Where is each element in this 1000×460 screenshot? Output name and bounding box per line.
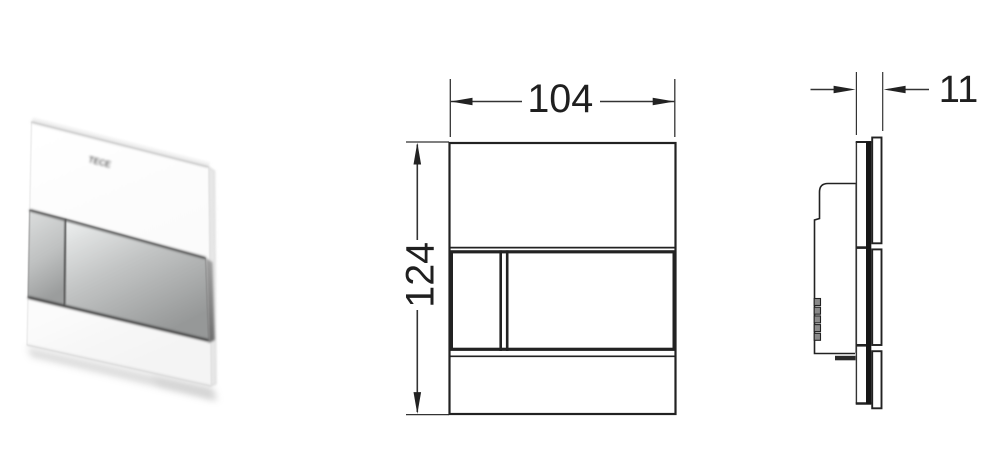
svg-text:11: 11 [939, 69, 978, 111]
svg-text:124: 124 [399, 242, 443, 308]
svg-text:104: 104 [527, 77, 593, 121]
